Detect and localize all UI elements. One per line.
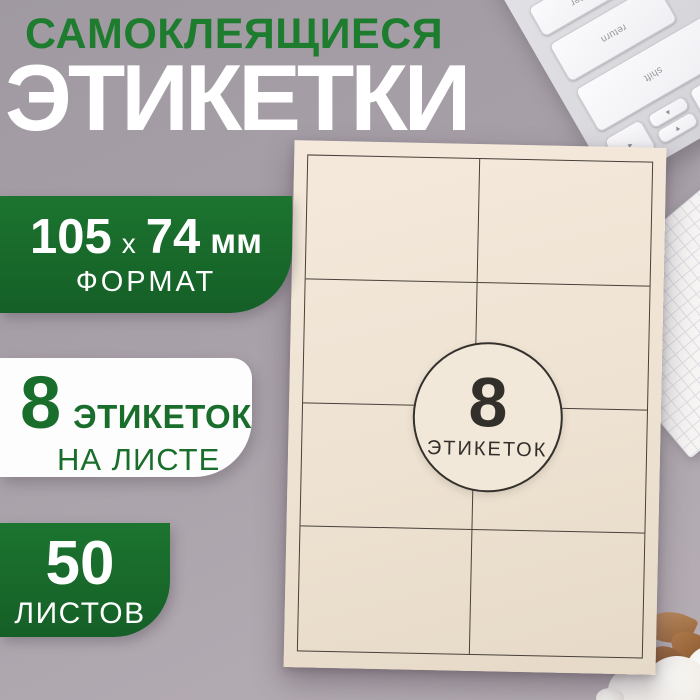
sticker-count: 8: [468, 373, 508, 433]
label-cell: [478, 159, 653, 286]
label-cell: [298, 527, 473, 654]
label-sheet: 8 ЭТИКЕТОК: [284, 140, 667, 675]
product-photo: enter return shift ◄ ▲ ▼ ► } ] э ж ; ?: [0, 0, 700, 700]
label-cell: [470, 530, 645, 657]
label-cell: [306, 155, 481, 282]
sticker-label: ЭТИКЕТОК: [427, 437, 548, 463]
